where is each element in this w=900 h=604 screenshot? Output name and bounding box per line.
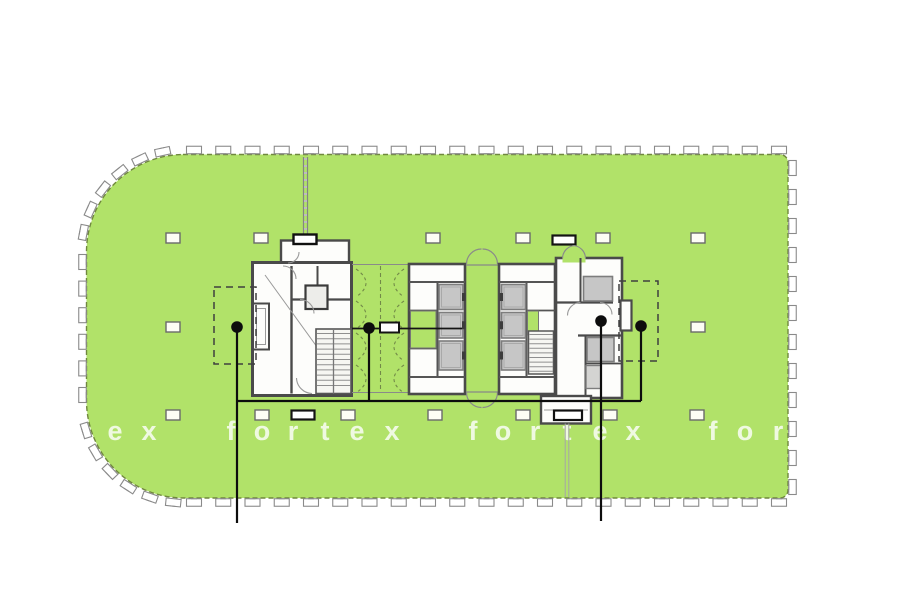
elevator-door xyxy=(462,293,465,301)
facade-mullion xyxy=(79,281,87,296)
facade-mullion xyxy=(216,146,231,154)
entrance-door xyxy=(554,411,582,421)
callout-dot-b xyxy=(363,322,375,334)
watermark-letter: t xyxy=(321,416,330,446)
facade-mullion xyxy=(567,499,582,507)
watermark-letter: r xyxy=(530,416,541,446)
elevator-shaft xyxy=(502,285,526,310)
facade-mullion xyxy=(789,161,797,176)
facade-mullion xyxy=(421,499,436,507)
facade-mullion xyxy=(479,499,494,507)
facade-mullion xyxy=(391,146,406,154)
floor-plan-svg: exfortexfortexfor xyxy=(0,0,900,604)
column-marker xyxy=(596,233,610,243)
facade-mullion xyxy=(304,146,319,154)
facade-mullion xyxy=(789,306,797,321)
column-marker xyxy=(341,410,355,420)
elevator-door xyxy=(462,321,465,329)
facade-mullion xyxy=(655,499,670,507)
watermark-letter: o xyxy=(737,416,754,446)
facade-mullion xyxy=(742,499,757,507)
facade-mullion xyxy=(187,146,202,154)
entrance-canopy xyxy=(294,235,317,245)
callout-dot-a xyxy=(231,321,243,333)
facade-mullion xyxy=(789,248,797,263)
elevator-door xyxy=(500,352,503,360)
facade-mullion xyxy=(333,499,348,507)
watermark-letter: f xyxy=(469,416,479,446)
facade-mullion xyxy=(684,499,699,507)
elevator-shaft xyxy=(502,341,526,370)
facade-mullion xyxy=(772,499,787,507)
elevator-shaft xyxy=(439,285,463,310)
facade-mullion xyxy=(245,499,260,507)
facade-mullion xyxy=(789,190,797,205)
column-marker xyxy=(516,233,530,243)
facade-mullion xyxy=(789,335,797,350)
column-marker xyxy=(691,322,705,332)
watermark-letter: r xyxy=(773,416,784,446)
facade-mullion xyxy=(245,146,260,154)
facade-mullion xyxy=(713,499,728,507)
facade-mullion xyxy=(508,146,523,154)
facade-mullion xyxy=(789,364,797,379)
facade-mullion xyxy=(450,146,465,154)
elevator-shafts xyxy=(500,285,526,371)
open-lobby-cell xyxy=(411,311,437,348)
facade-mullion xyxy=(421,146,436,154)
column-marker xyxy=(428,410,442,420)
stairwell-right xyxy=(529,331,554,374)
watermark-letter: f xyxy=(709,416,719,446)
watermark-letter: o xyxy=(495,416,512,446)
column-marker xyxy=(690,410,704,420)
column-marker xyxy=(166,233,180,243)
floor-plan-canvas: exfortexfortexfor xyxy=(0,0,900,604)
facade-mullion xyxy=(274,146,289,154)
column-marker xyxy=(255,410,269,420)
watermark-letter: f xyxy=(227,416,237,446)
facade-mullion xyxy=(655,146,670,154)
column-marker xyxy=(603,410,617,420)
facade-mullion xyxy=(625,499,640,507)
facade-mullion xyxy=(79,388,87,403)
elevator-shaft xyxy=(502,313,526,339)
watermark-letter: e xyxy=(107,416,122,446)
column-marker xyxy=(426,233,440,243)
elevator-door xyxy=(462,352,465,360)
facade-mullion xyxy=(274,499,289,507)
column-marker xyxy=(516,410,530,420)
elevator-door xyxy=(500,293,503,301)
watermark-letter: x xyxy=(625,416,640,446)
facade-mullion xyxy=(538,499,553,507)
facade-mullion xyxy=(79,255,87,270)
facade-mullion xyxy=(165,498,181,507)
facade-mullion xyxy=(79,308,87,323)
service-shaft xyxy=(584,277,613,302)
top-entry-opening xyxy=(563,254,586,263)
facade-mullion xyxy=(596,146,611,154)
facade-mullion xyxy=(450,499,465,507)
facade-mullion xyxy=(187,499,202,507)
facade-mullion xyxy=(742,146,757,154)
callout-dot-d xyxy=(635,320,647,332)
stairwell-left xyxy=(316,329,351,394)
facade-mullion xyxy=(391,499,406,507)
facade-mullion xyxy=(79,334,87,349)
facade-mullion xyxy=(625,146,640,154)
facade-mullion xyxy=(362,499,377,507)
section-bar xyxy=(380,323,399,333)
facade-mullion xyxy=(479,146,494,154)
shaft-room xyxy=(306,286,328,310)
facade-mullion xyxy=(216,499,231,507)
facade-mullion xyxy=(79,361,87,376)
elevator-shaft xyxy=(439,341,463,370)
column-marker xyxy=(691,233,705,243)
facade-mullion xyxy=(684,146,699,154)
facade-mullion xyxy=(333,146,348,154)
elevator-shaft xyxy=(439,313,463,339)
facade-mullion xyxy=(567,146,582,154)
column-marker xyxy=(166,410,180,420)
service-shaft xyxy=(586,366,601,389)
facade-mullion xyxy=(508,499,523,507)
wall-niche xyxy=(621,301,632,331)
facade-mullion xyxy=(789,480,797,495)
watermark-letter: x xyxy=(384,416,399,446)
facade-mullion xyxy=(713,146,728,154)
facade-mullion xyxy=(304,499,319,507)
equipment-box xyxy=(292,411,315,420)
facade-mullion xyxy=(789,393,797,408)
callout-dot-c xyxy=(595,315,607,327)
facade-mullion xyxy=(789,422,797,437)
facade-mullion xyxy=(772,146,787,154)
elevator-shafts xyxy=(439,285,465,371)
facade-mullion xyxy=(789,219,797,234)
core-right-block xyxy=(556,246,632,399)
facade-mullion xyxy=(789,277,797,292)
elevator-door xyxy=(500,321,503,329)
watermark-letter: x xyxy=(141,416,156,446)
elevator-bank-2 xyxy=(499,264,555,394)
facade-mullion xyxy=(362,146,377,154)
facade-mullion xyxy=(789,451,797,466)
equipment-box xyxy=(553,236,576,245)
column-marker xyxy=(166,322,180,332)
column-marker xyxy=(254,233,268,243)
facade-mullion xyxy=(538,146,553,154)
facade-mullion xyxy=(596,499,611,507)
